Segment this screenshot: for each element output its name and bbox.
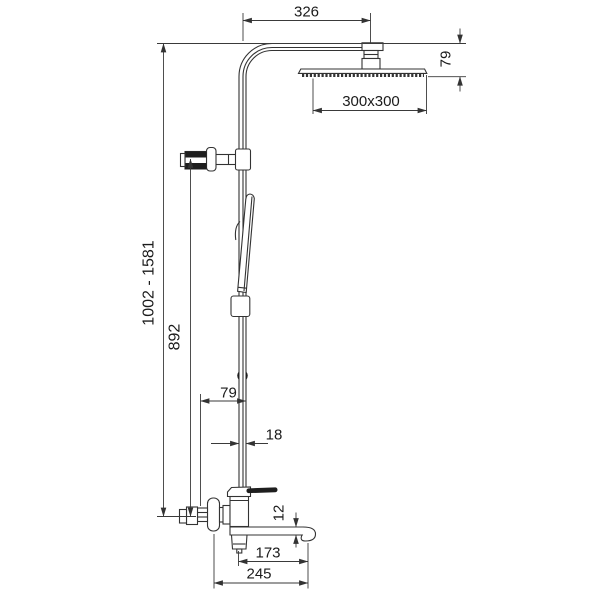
dim-label-head-drop: 79: [438, 51, 455, 68]
dimension-pipe-width: 18: [211, 427, 282, 444]
rail-slider: [231, 296, 250, 317]
dimension-head-size: 300x300: [313, 75, 427, 114]
faucet-wall-nut: [187, 507, 198, 525]
dim-label-riser-height: 892: [167, 324, 184, 351]
dim-label-total-reach: 245: [246, 566, 271, 583]
rain-shower-head: [299, 51, 427, 76]
dimension-lines: 326 79 300x300 1002 - 1581 8: [141, 4, 467, 589]
head-plate: [299, 69, 427, 73]
dimension-riser-height: 892: [167, 159, 191, 517]
dimension-arm-reach: 326: [243, 4, 371, 43]
head-connector-nut: [362, 59, 380, 70]
faucet-lever: [246, 487, 277, 493]
dimension-height-range: 1002 - 1581: [141, 44, 197, 517]
arm-end-plate: [362, 43, 383, 51]
dim-label-spout-thickness: 12: [271, 505, 288, 522]
wall-bracket: [181, 148, 251, 172]
dimension-spout-thickness: 12: [271, 505, 304, 548]
faucet-outlet: [232, 535, 248, 549]
dim-label-pipe-width: 18: [266, 427, 283, 444]
dim-label-height-range: 1002 - 1581: [141, 240, 158, 326]
bracket-wall-tip: [181, 154, 186, 167]
mixer-faucet: [180, 487, 316, 553]
dim-label-spout-reach: 173: [255, 545, 280, 562]
faucet-wall-connector: [198, 508, 208, 522]
faucet-wall-flange: [208, 498, 220, 531]
dim-label-arm-reach: 326: [294, 4, 319, 21]
hand-shower-wand: [238, 194, 255, 293]
drawing-canvas: 326 79 300x300 1002 - 1581 8: [0, 0, 600, 600]
shower-arm: [272, 43, 383, 51]
dim-label-riser-offset: 79: [220, 385, 237, 402]
dim-label-head-size: 300x300: [342, 93, 400, 110]
dimension-head-drop: 79: [428, 29, 466, 92]
bracket-flange: [207, 148, 217, 172]
bracket-pipe-clamp: [236, 149, 251, 170]
shower-column-technical-drawing: 326 79 300x300 1002 - 1581 8: [0, 0, 600, 600]
